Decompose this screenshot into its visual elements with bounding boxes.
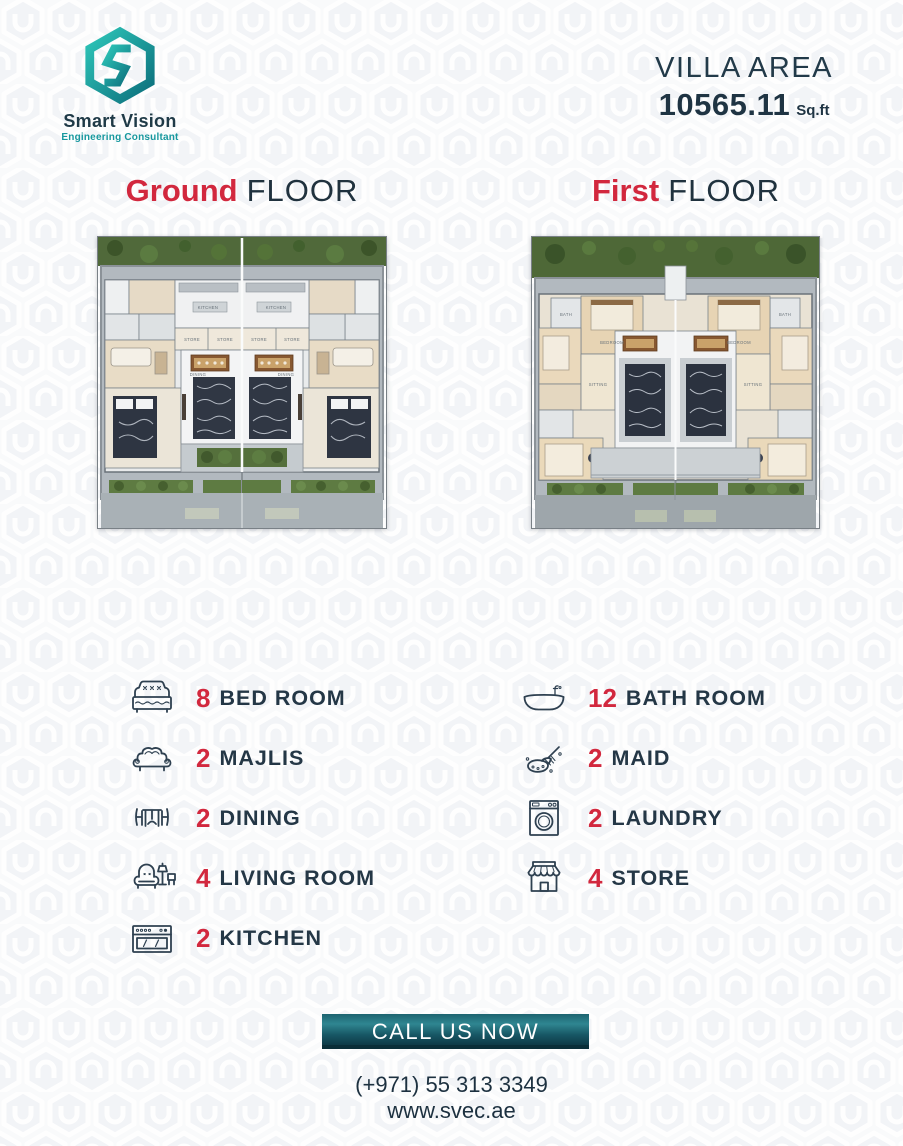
dining-icon xyxy=(128,797,180,839)
room-label-dining: DINING xyxy=(190,372,206,377)
room-label-store: STORE xyxy=(251,337,267,342)
amenity-kitchen: 2 KITCHEN xyxy=(128,908,375,968)
amenity-label: KITCHEN xyxy=(219,926,322,951)
room-label-bedroom: BEDROOM xyxy=(727,340,751,345)
room-label-store: STORE xyxy=(284,337,300,342)
bed-icon xyxy=(128,677,180,719)
room-label-store: STORE xyxy=(184,337,200,342)
ground-floor-heading-rest: FLOOR xyxy=(247,173,359,208)
smart-vision-logo-icon xyxy=(80,26,160,104)
background-pattern xyxy=(0,0,903,1146)
amenity-count: 2 xyxy=(588,743,602,774)
amenity-label: BED ROOM xyxy=(219,686,345,711)
amenity-bath-room: 12 BATH ROOM xyxy=(520,668,766,728)
ground-floor-plan: KITCHEN KITCHEN STORE STORE STORE STORE … xyxy=(97,236,387,529)
amenity-count: 2 xyxy=(588,803,602,834)
room-label-dining: DINING xyxy=(278,372,294,377)
amenity-laundry: 2 LAUNDRY xyxy=(520,788,766,848)
laundry-icon xyxy=(520,797,572,839)
amenities-left-column: 8 BED ROOM 2 MAJLIS xyxy=(128,668,375,968)
first-floor-heading-highlight: First xyxy=(592,173,659,208)
flyer-page: Smart Vision Engineering Consultant VILL… xyxy=(0,0,903,1146)
smart-vision-logo: Smart Vision Engineering Consultant xyxy=(40,26,200,143)
amenities-right-column: 12 BATH ROOM 2 MAID xyxy=(520,668,766,908)
room-label-store: STORE xyxy=(217,337,233,342)
ground-floor-heading: GroundFLOOR xyxy=(97,173,387,209)
amenity-dining: 2 DINING xyxy=(128,788,375,848)
amenity-count: 4 xyxy=(196,863,210,894)
first-floor-plan: BEDROOM BEDROOM BATH BATH SITTING SITTIN… xyxy=(531,236,820,529)
call-us-now-button[interactable]: CALL US NOW xyxy=(322,1014,589,1049)
amenity-count: 2 xyxy=(196,803,210,834)
room-label-bath: BATH xyxy=(560,312,572,317)
phone-number[interactable]: (+971) 55 313 3349 xyxy=(0,1072,903,1098)
amenity-label: BATH ROOM xyxy=(626,686,766,711)
villa-area-label: VILLA AREA xyxy=(655,52,833,85)
room-label-kitchen: KITCHEN xyxy=(198,305,218,310)
maid-icon xyxy=(520,737,572,779)
villa-area-block: VILLA AREA 10565.11Sq.ft xyxy=(655,52,833,123)
amenity-label: STORE xyxy=(611,866,690,891)
first-floor-heading: FirstFLOOR xyxy=(541,173,831,209)
amenity-bed-room: 8 BED ROOM xyxy=(128,668,375,728)
amenity-label: DINING xyxy=(219,806,300,831)
room-label-bath: BATH xyxy=(779,312,791,317)
villa-area-value: 10565.11 xyxy=(659,87,791,122)
store-icon xyxy=(520,857,572,899)
room-label-sitting: SITTING xyxy=(744,382,763,387)
amenity-maid: 2 MAID xyxy=(520,728,766,788)
amenity-count: 4 xyxy=(588,863,602,894)
amenity-count: 8 xyxy=(196,683,210,714)
room-label-sitting: SITTING xyxy=(589,382,608,387)
room-label-kitchen: KITCHEN xyxy=(266,305,286,310)
sofa-icon xyxy=(128,737,180,779)
website-url[interactable]: www.svec.ae xyxy=(0,1098,903,1124)
bathtub-icon xyxy=(520,677,572,719)
ground-floor-heading-highlight: Ground xyxy=(126,173,238,208)
amenity-label: LIVING ROOM xyxy=(219,866,375,891)
brand-name: Smart Vision xyxy=(40,111,200,132)
villa-area-unit: Sq.ft xyxy=(796,102,829,119)
living-room-icon xyxy=(128,857,180,899)
brand-tagline: Engineering Consultant xyxy=(40,132,200,143)
room-label-bedroom: BEDROOM xyxy=(600,340,624,345)
amenity-label: LAUNDRY xyxy=(611,806,722,831)
kitchen-icon xyxy=(128,917,180,959)
first-floor-heading-rest: FLOOR xyxy=(668,173,780,208)
amenity-living-room: 4 LIVING ROOM xyxy=(128,848,375,908)
amenity-store: 4 STORE xyxy=(520,848,766,908)
amenity-majlis: 2 MAJLIS xyxy=(128,728,375,788)
amenity-count: 2 xyxy=(196,923,210,954)
amenity-label: MAJLIS xyxy=(219,746,304,771)
amenity-count: 2 xyxy=(196,743,210,774)
amenity-count: 12 xyxy=(588,683,617,714)
amenity-label: MAID xyxy=(611,746,670,771)
